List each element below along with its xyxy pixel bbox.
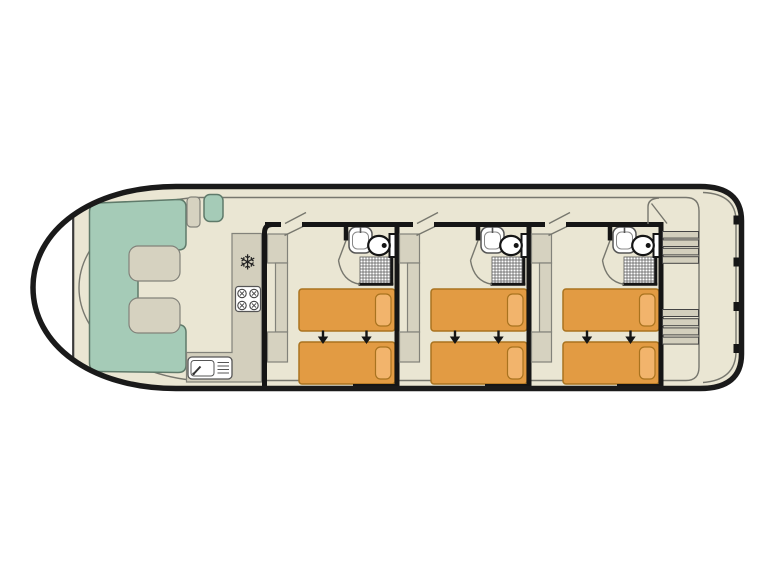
lounge-table [129, 246, 180, 281]
entry-step [187, 197, 200, 227]
lounge-table [129, 298, 180, 333]
hob-icon [236, 287, 261, 312]
boat-floor-plan: ❄ [0, 0, 768, 576]
side-seat [204, 195, 223, 222]
galley-sink-icon [188, 357, 232, 379]
deck-plan-canvas: ❄ [0, 0, 768, 576]
refrigerator-snowflake-icon: ❄ [239, 251, 257, 275]
